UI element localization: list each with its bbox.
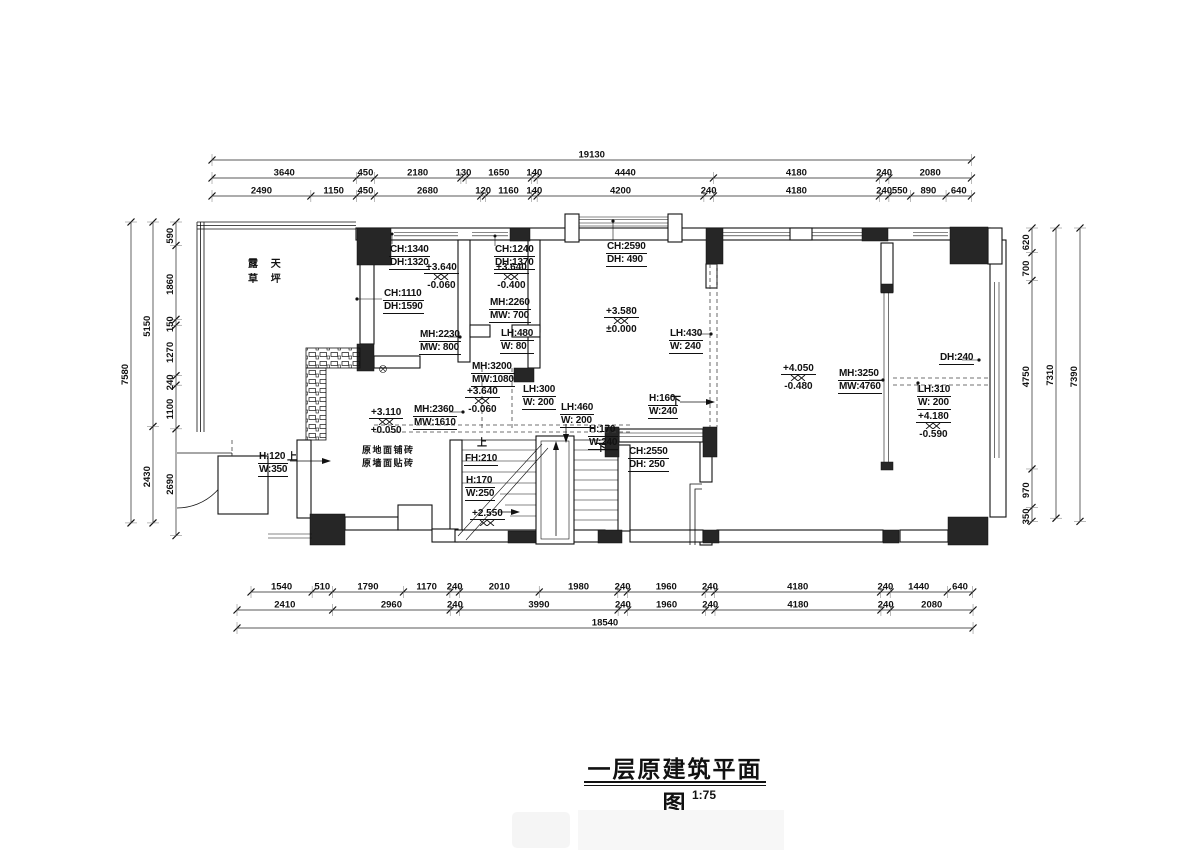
- svg-text:1540: 1540: [271, 582, 292, 593]
- svg-text:2410: 2410: [274, 600, 295, 611]
- svg-text:240: 240: [702, 600, 718, 611]
- svg-text:2490: 2490: [251, 186, 272, 197]
- svg-text:120: 120: [475, 186, 491, 197]
- svg-text:240: 240: [615, 600, 631, 611]
- svg-text:640: 640: [952, 582, 968, 593]
- drawing-scale: 1:75: [692, 788, 716, 802]
- svg-text:140: 140: [526, 168, 542, 179]
- watermark-logo: [512, 812, 570, 848]
- svg-text:2080: 2080: [920, 168, 941, 179]
- level-hall-south: +3.640 -0.060: [465, 386, 500, 415]
- svg-text:140: 140: [526, 186, 542, 197]
- svg-text:130: 130: [456, 168, 472, 179]
- svg-text:19130: 19130: [579, 150, 605, 161]
- svg-text:1980: 1980: [568, 582, 589, 593]
- note-ch1110: CH:1110DH:1590: [383, 288, 424, 314]
- svg-text:1440: 1440: [908, 582, 929, 593]
- note-ch2590: CH:2590DH: 490: [606, 241, 647, 267]
- svg-text:18540: 18540: [592, 618, 618, 629]
- svg-text:4180: 4180: [787, 582, 808, 593]
- svg-text:1170: 1170: [416, 582, 437, 593]
- note-mh2230: MH:2230MW: 800: [419, 329, 461, 355]
- svg-text:2430: 2430: [142, 466, 153, 487]
- note-h120: H:120W:350: [258, 451, 288, 477]
- svg-text:2680: 2680: [417, 186, 438, 197]
- svg-text:1150: 1150: [323, 186, 344, 197]
- watermark: [512, 810, 792, 850]
- svg-text:240: 240: [876, 186, 892, 197]
- note-mh3250: MH:3250MW:4760: [838, 368, 882, 394]
- svg-text:5150: 5150: [142, 316, 153, 337]
- level-entry: +3.110 +0.050: [369, 407, 403, 436]
- svg-text:1650: 1650: [488, 168, 509, 179]
- svg-text:7580: 7580: [120, 364, 131, 385]
- note-h170-stair: H:170W:250: [465, 475, 495, 501]
- svg-text:590: 590: [165, 228, 176, 244]
- svg-text:1160: 1160: [498, 186, 519, 197]
- lattice-screen: [306, 348, 360, 440]
- down-label-1: 下: [671, 396, 681, 408]
- svg-text:510: 510: [314, 582, 330, 593]
- svg-text:2080: 2080: [921, 600, 942, 611]
- svg-text:2690: 2690: [165, 474, 176, 495]
- svg-text:240: 240: [877, 582, 893, 593]
- svg-text:890: 890: [920, 186, 936, 197]
- svg-text:1100: 1100: [165, 399, 176, 420]
- title-underline-thin: [584, 785, 766, 786]
- svg-text:150: 150: [165, 316, 176, 332]
- title-underline-thick: [584, 781, 766, 783]
- svg-text:620: 620: [1021, 234, 1032, 250]
- note-dh240: DH:240: [939, 352, 974, 365]
- level-room1: +3.640 -0.060: [424, 262, 459, 291]
- svg-text:4750: 4750: [1021, 366, 1032, 387]
- note-lh310: LH:310W: 200: [917, 384, 951, 410]
- svg-text:1960: 1960: [656, 600, 677, 611]
- up-label-1: 上: [287, 452, 297, 464]
- level-stair: +2.550: [470, 508, 505, 526]
- svg-text:4180: 4180: [787, 600, 808, 611]
- svg-text:2010: 2010: [489, 582, 510, 593]
- svg-text:240: 240: [878, 600, 894, 611]
- svg-text:240: 240: [615, 582, 631, 593]
- svg-text:4180: 4180: [786, 186, 807, 197]
- svg-text:2960: 2960: [381, 600, 402, 611]
- svg-text:640: 640: [951, 186, 967, 197]
- watermark-text: [578, 810, 784, 850]
- svg-text:240: 240: [447, 600, 463, 611]
- note-lh300: LH:300W: 200: [522, 384, 556, 410]
- svg-text:3990: 3990: [528, 600, 549, 611]
- svg-text:1960: 1960: [656, 582, 677, 593]
- terrace-boundary: [197, 222, 356, 432]
- level-room-right: +4.050 -0.480: [781, 363, 816, 392]
- svg-text:240: 240: [701, 186, 717, 197]
- note-lh430: LH:430W: 240: [669, 328, 703, 354]
- svg-text:240: 240: [876, 168, 892, 179]
- svg-text:550: 550: [892, 186, 908, 197]
- svg-text:450: 450: [358, 186, 374, 197]
- level-strip-right: +4.180 -0.590: [916, 411, 951, 440]
- drawing-title: 一层原建筑平面图: [586, 750, 764, 818]
- svg-text:450: 450: [358, 168, 374, 179]
- note-fh210: FH:210: [464, 453, 498, 466]
- svg-text:2180: 2180: [407, 168, 428, 179]
- note-mh3200: MH:3200MW:1080: [471, 361, 515, 387]
- terrace-label: 露 天 草 坪: [248, 257, 286, 287]
- svg-text:4440: 4440: [615, 168, 636, 179]
- svg-text:1860: 1860: [165, 274, 176, 295]
- up-label-2: 上: [477, 438, 487, 450]
- note-ch2550: CH:2550DH: 250: [628, 446, 669, 472]
- svg-text:3640: 3640: [274, 168, 295, 179]
- level-hall: +3.580 ±0.000: [604, 306, 639, 335]
- note-mh2260: MH:2260MW: 700: [489, 297, 531, 323]
- note-mh2360: MH:2360MW:1610: [413, 404, 457, 430]
- svg-text:700: 700: [1021, 261, 1032, 277]
- svg-text:350: 350: [1021, 509, 1032, 525]
- note-lh480: LH:480W: 80: [500, 328, 534, 354]
- svg-text:970: 970: [1021, 482, 1032, 498]
- svg-text:4180: 4180: [786, 168, 807, 179]
- svg-text:1790: 1790: [357, 582, 378, 593]
- svg-text:7310: 7310: [1045, 365, 1056, 386]
- svg-text:7390: 7390: [1069, 366, 1080, 387]
- level-room2: +3.640 -0.400: [494, 262, 529, 291]
- paving-note: 原地面铺砖 原墙面贴砖: [362, 444, 415, 470]
- svg-text:240: 240: [702, 582, 718, 593]
- svg-text:1270: 1270: [165, 342, 176, 363]
- floorplan-sheet: 1913036404502180130165014044404180240208…: [0, 0, 1200, 859]
- down-label-2: 下: [596, 443, 606, 455]
- svg-text:240: 240: [447, 582, 463, 593]
- svg-text:4200: 4200: [610, 186, 631, 197]
- svg-text:240: 240: [165, 374, 176, 390]
